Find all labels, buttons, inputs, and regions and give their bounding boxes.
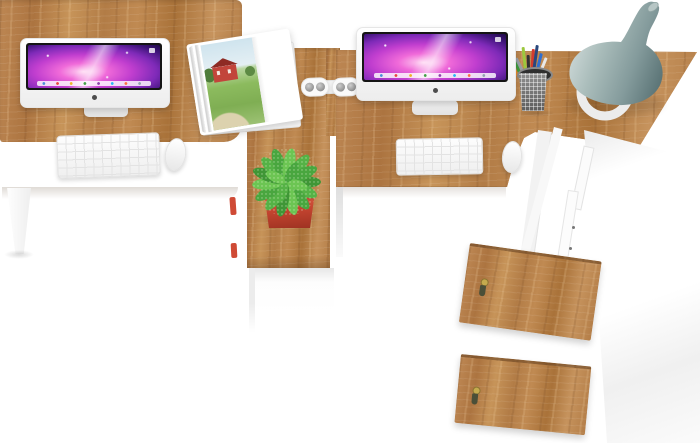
pedestal-cabinet-base xyxy=(249,268,334,332)
socket-icon xyxy=(305,83,314,92)
dock-bar xyxy=(37,81,151,86)
key-tassel-icon xyxy=(471,393,478,405)
field-path xyxy=(209,93,265,131)
door-key xyxy=(477,278,490,298)
imac-right-screen xyxy=(362,32,508,82)
desk-edge-shadow xyxy=(338,186,506,198)
red-accent-sliver xyxy=(229,197,236,215)
cup-mesh-body xyxy=(517,73,549,111)
power-strip xyxy=(301,73,360,101)
imac-right-stand xyxy=(412,100,458,115)
vase-bottle xyxy=(569,2,662,105)
product-photo-desk-set xyxy=(0,0,700,443)
keyboard-left xyxy=(56,132,160,179)
dock-bar xyxy=(374,73,496,78)
cabinet-fitting-dot xyxy=(569,247,572,250)
apple-logo-icon xyxy=(92,95,97,100)
plant-leaves xyxy=(240,140,332,222)
tree-blob xyxy=(244,65,255,76)
keyboard-right xyxy=(396,137,484,176)
nebula-wallpaper xyxy=(28,45,160,88)
vase xyxy=(560,0,676,128)
imac-left-screen xyxy=(26,43,162,90)
magazine xyxy=(186,28,304,139)
nebula-wallpaper xyxy=(364,34,506,80)
magazine-spread xyxy=(186,28,303,135)
desktop-file-icon xyxy=(495,37,501,42)
desktop-file-icon xyxy=(149,48,155,53)
red-farmhouse xyxy=(212,64,238,83)
house-window xyxy=(217,71,221,75)
power-strip-pill xyxy=(301,77,330,97)
house-window xyxy=(228,69,232,73)
cabinet-fitting-dot xyxy=(572,226,575,229)
apple-logo-icon xyxy=(433,88,438,93)
cabinet-door-top xyxy=(459,243,602,341)
red-accent-sliver xyxy=(231,243,238,258)
cabinet-door-bottom xyxy=(454,354,591,435)
socket-icon xyxy=(347,82,356,91)
desk-edge-shadow xyxy=(2,187,238,199)
desk-leg-left xyxy=(5,188,31,254)
socket-icon xyxy=(316,82,325,91)
door-key xyxy=(469,386,481,406)
socket-icon xyxy=(336,82,345,91)
desk-leg-strip xyxy=(336,187,343,257)
key-tassel-icon xyxy=(479,285,486,297)
